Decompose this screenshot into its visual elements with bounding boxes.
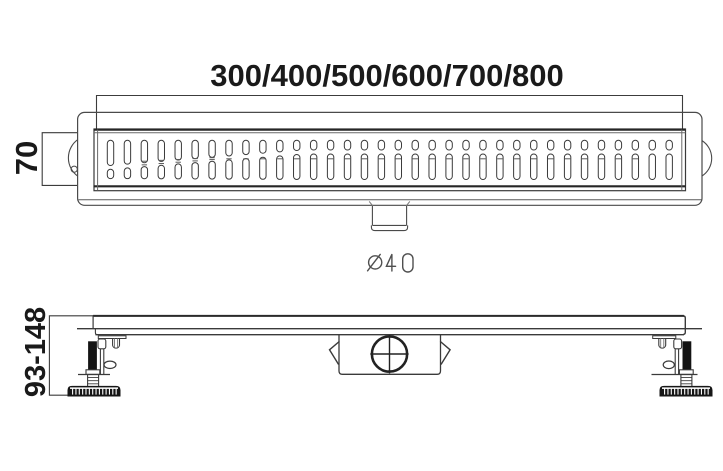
svg-text:70: 70 [9, 141, 44, 175]
svg-text:93-148: 93-148 [20, 307, 52, 397]
svg-text:300/400/500/600/700/800: 300/400/500/600/700/800 [210, 58, 563, 93]
